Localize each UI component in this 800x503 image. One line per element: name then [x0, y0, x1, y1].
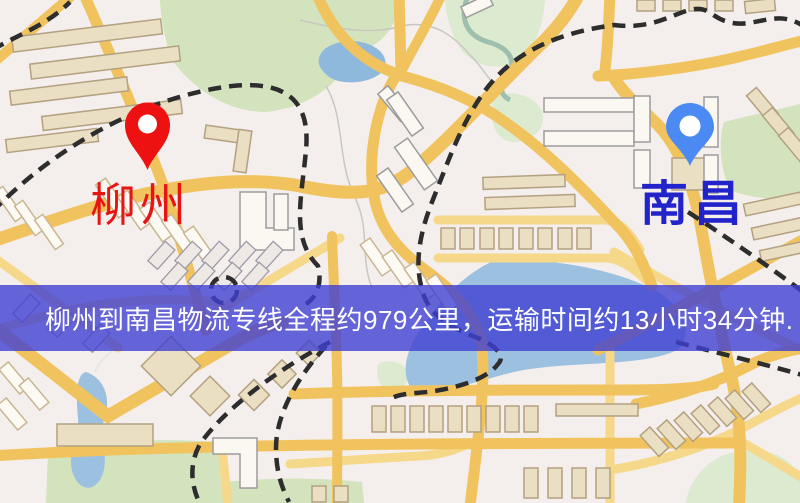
destination-city-label: 南昌	[640, 178, 748, 231]
route-info-text: 柳州到南昌物流专线全程约979公里，运输时间约13小时34分钟.	[45, 300, 793, 337]
destination-pin-hole	[680, 116, 701, 137]
map-image: 柳州 南昌	[0, 0, 800, 503]
route-info-banner: 柳州到南昌物流专线全程约979公里，运输时间约13小时34分钟.	[0, 285, 800, 351]
origin-pin-hole	[138, 115, 157, 134]
origin-city-label: 柳州	[90, 179, 190, 231]
logistics-route-map: 柳州 南昌 柳州到南昌物流专线全程约979公里，运输时间约13小时34分钟.	[0, 0, 800, 503]
